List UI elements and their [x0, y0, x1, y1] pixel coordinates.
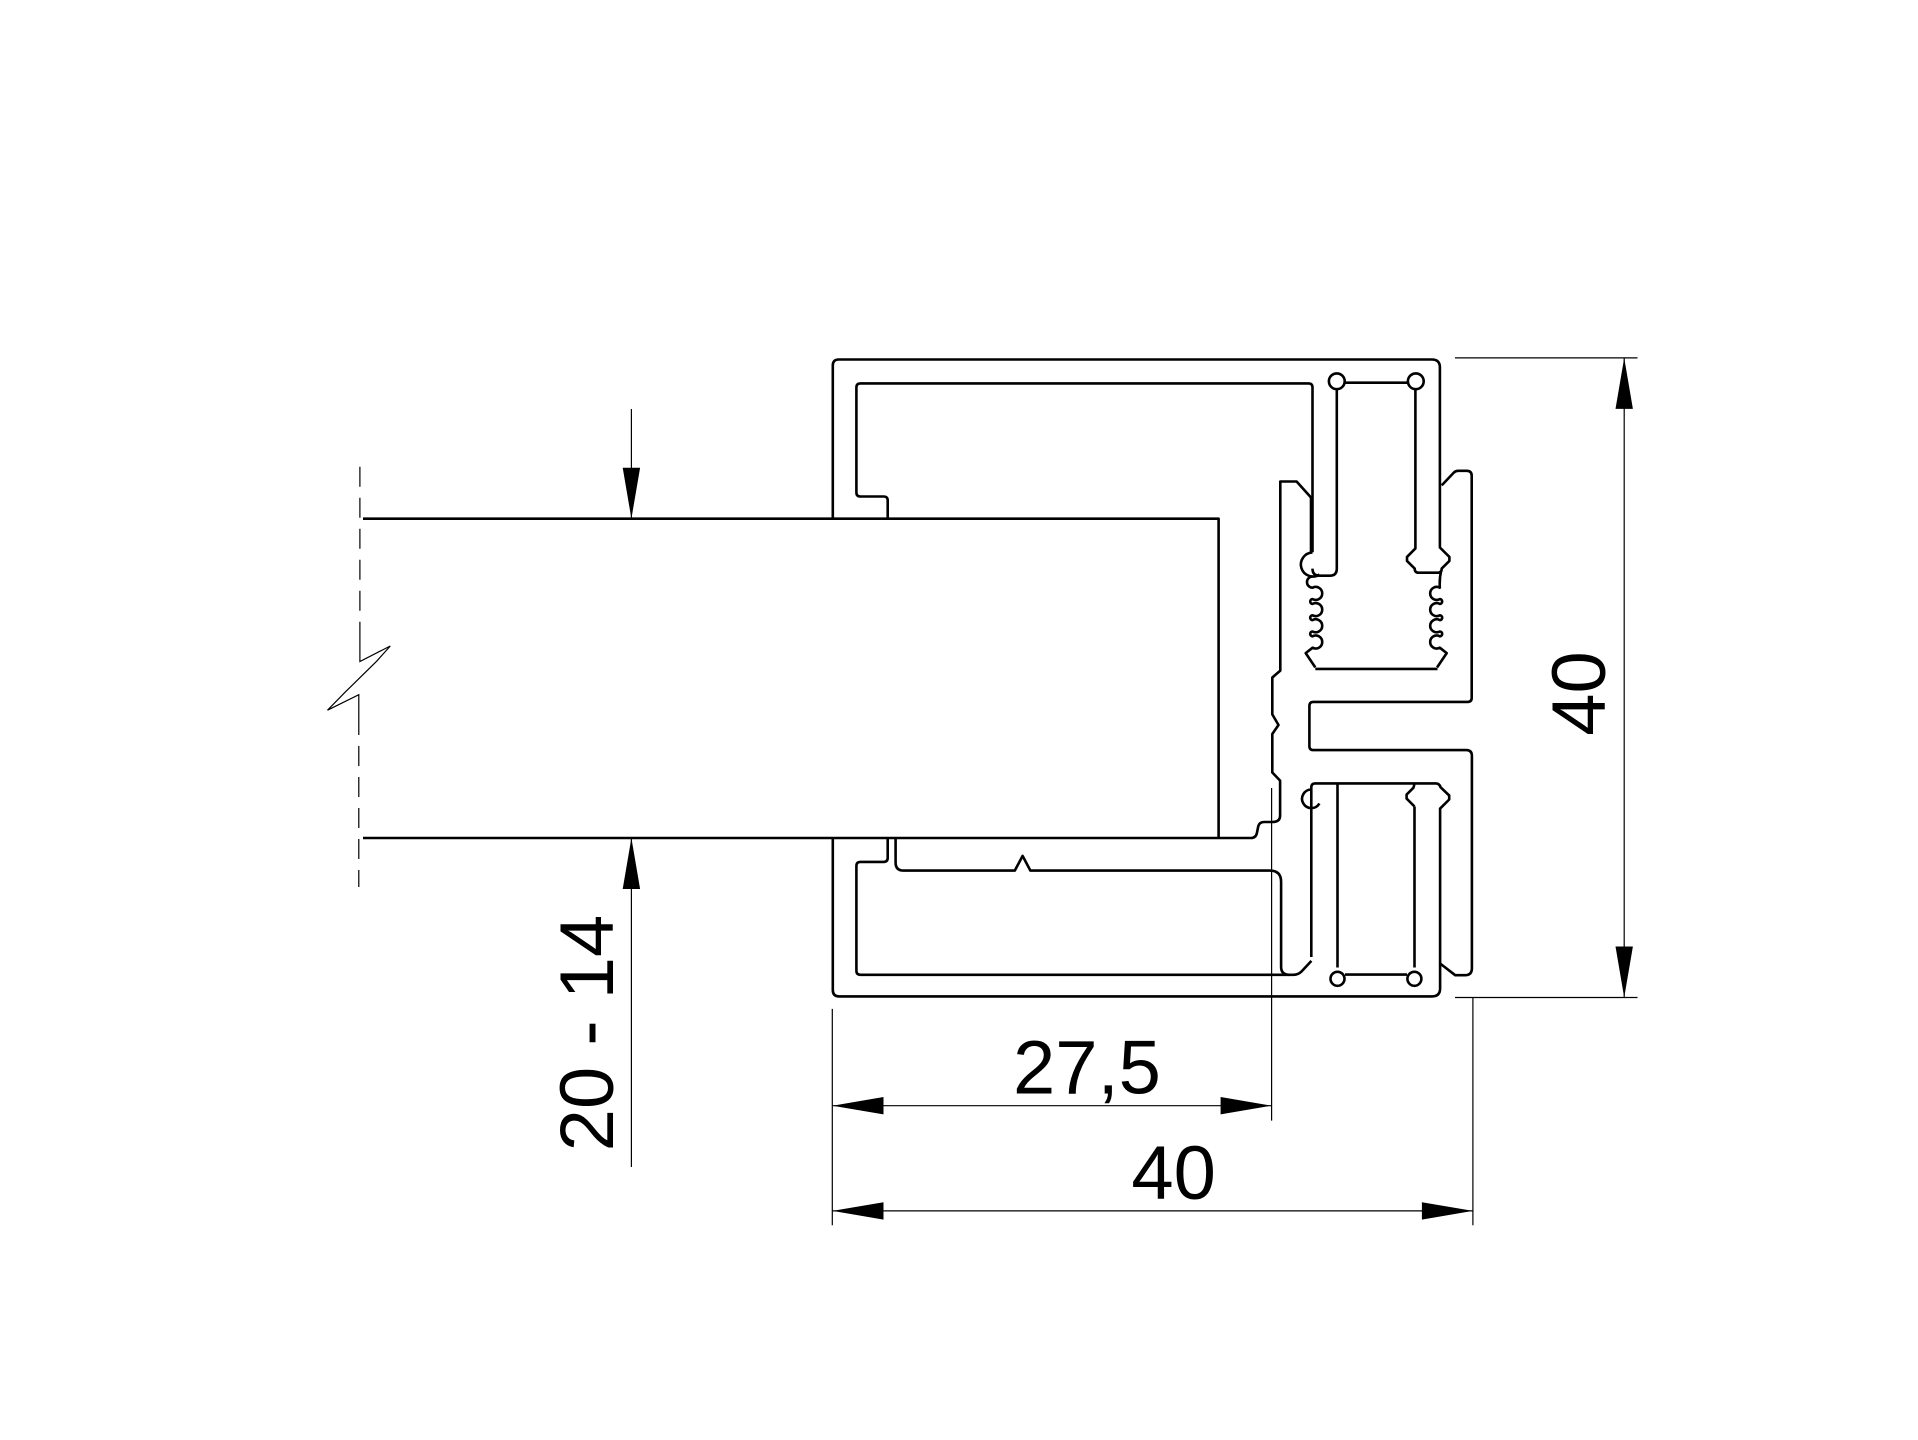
svg-text:20 - 14: 20 - 14 — [545, 915, 630, 1152]
svg-text:40: 40 — [1537, 651, 1622, 736]
svg-text:27,5: 27,5 — [1013, 1026, 1161, 1111]
svg-text:40: 40 — [1131, 1131, 1216, 1216]
